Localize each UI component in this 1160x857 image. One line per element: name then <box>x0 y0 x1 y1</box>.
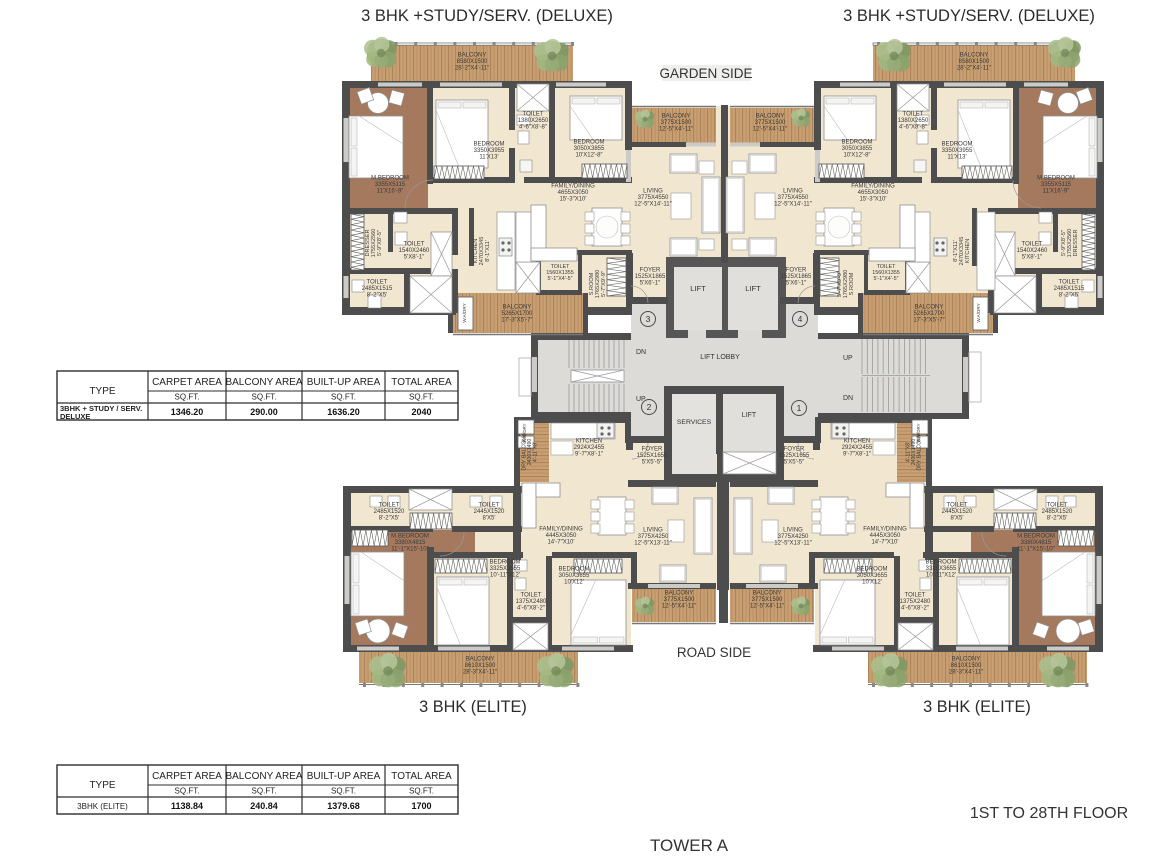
svg-text:1636.20: 1636.20 <box>327 407 360 417</box>
svg-text:BALCONY8610X150028'-3″X4'-11″: BALCONY8610X150028'-3″X4'-11″ <box>949 656 984 675</box>
svg-text:2040: 2040 <box>411 407 431 417</box>
svg-text:3 BHK (ELITE): 3 BHK (ELITE) <box>923 698 1031 716</box>
svg-text:BALCONY8580X150028'-2″X4'-11″: BALCONY8580X150028'-2″X4'-11″ <box>455 52 490 71</box>
svg-text:GARDEN SIDE: GARDEN SIDE <box>659 66 752 81</box>
svg-text:M.BEDROOM3380X481511'-1″X15'-1: M.BEDROOM3380X481511'-1″X15'-10″ <box>1017 533 1055 552</box>
svg-text:SQ.FT.: SQ.FT. <box>331 787 356 796</box>
svg-text:1138.84: 1138.84 <box>171 801 203 811</box>
svg-text:KITCHEN2924X24559'-7″X8'-1″: KITCHEN2924X24559'-7″X8'-1″ <box>574 438 605 457</box>
svg-text:CARPET AREA: CARPET AREA <box>152 377 222 388</box>
svg-text:BALCONY3775X150012'-5″X4'-11″: BALCONY3775X150012'-5″X4'-11″ <box>662 590 697 609</box>
svg-text:BALCONY AREA: BALCONY AREA <box>225 377 302 388</box>
svg-text:DRESSER1755X25605'-9″X8'-5″: DRESSER1755X25605'-9″X8'-5″ <box>365 229 383 258</box>
svg-text:1379.68: 1379.68 <box>327 801 360 811</box>
svg-text:BUILT-UP AREA: BUILT-UP AREA <box>307 377 381 388</box>
svg-text:1700: 1700 <box>411 801 431 811</box>
svg-text:W.M/DRY: W.M/DRY <box>522 423 527 442</box>
svg-text:3 BHK (ELITE): 3 BHK (ELITE) <box>419 698 527 716</box>
svg-text:LIFT: LIFT <box>742 412 757 419</box>
svg-text:TOTAL AREA: TOTAL AREA <box>391 771 452 782</box>
svg-text:BEDROOM3050X385510'X12'-8″: BEDROOM3050X385510'X12'-8″ <box>573 139 605 158</box>
svg-text:3: 3 <box>646 314 651 324</box>
svg-text:BALCONY AREA: BALCONY AREA <box>225 771 302 782</box>
svg-text:BALCONY3775X150012'-5″X4'-11″: BALCONY3775X150012'-5″X4'-11″ <box>750 590 785 609</box>
svg-text:1346.20: 1346.20 <box>171 407 204 417</box>
svg-text:1ST TO 28TH FLOOR: 1ST TO 28TH FLOOR <box>970 805 1128 822</box>
svg-text:DN: DN <box>636 349 646 356</box>
svg-text:BUILT-UP AREA: BUILT-UP AREA <box>307 771 381 782</box>
svg-text:SERVICES: SERVICES <box>677 419 712 426</box>
svg-text:W.M/DRY: W.M/DRY <box>916 423 921 442</box>
svg-text:BALCONY5265X170017'-3″X5'-7″: BALCONY5265X170017'-3″X5'-7″ <box>913 304 945 323</box>
svg-text:SQ.FT.: SQ.FT. <box>175 787 200 796</box>
svg-text:SQ.FT.: SQ.FT. <box>409 393 434 402</box>
svg-text:SQ.FT.: SQ.FT. <box>331 393 356 402</box>
svg-text:DN: DN <box>843 395 853 402</box>
svg-text:ROAD SIDE: ROAD SIDE <box>677 645 751 660</box>
svg-text:DELUXE: DELUXE <box>60 412 90 421</box>
svg-text:SQ.FT.: SQ.FT. <box>252 393 277 402</box>
svg-text:3 BHK +STUDY/SERV. (DELUXE): 3 BHK +STUDY/SERV. (DELUXE) <box>361 7 613 25</box>
svg-text:M.BEDROOM3355X511511'X16'-9″: M.BEDROOM3355X511511'X16'-9″ <box>1037 175 1075 194</box>
svg-text:BALCONY8580X150028'-2″X4'-11″: BALCONY8580X150028'-2″X4'-11″ <box>957 52 992 71</box>
svg-text:TYPE: TYPE <box>89 386 115 397</box>
svg-text:BEDROOM3325X365510'-11″X12': BEDROOM3325X365510'-11″X12' <box>489 559 521 578</box>
svg-text:BEDROOM3050X385510'X12'-8″: BEDROOM3050X385510'X12'-8″ <box>841 139 873 158</box>
svg-text:BALCONY8610X150028'-3″X4'-11″: BALCONY8610X150028'-3″X4'-11″ <box>463 656 498 675</box>
svg-text:8'-1″X11'2470X3345KITCHEN: 8'-1″X11'2470X3345KITCHEN <box>953 237 971 266</box>
svg-text:KITCHEN2470X33458'-1″X11': KITCHEN2470X33458'-1″X11' <box>473 237 491 266</box>
svg-text:UP: UP <box>636 396 646 403</box>
svg-text:BEDROOM3325X365510'-11″X12': BEDROOM3325X365510'-11″X12' <box>925 559 957 578</box>
svg-text:3 BHK +STUDY/SERV. (DELUXE): 3 BHK +STUDY/SERV. (DELUXE) <box>843 7 1095 25</box>
svg-text:SQ.FT.: SQ.FT. <box>409 787 434 796</box>
svg-text:240.84: 240.84 <box>250 801 278 811</box>
svg-text:2: 2 <box>647 402 652 412</box>
svg-text:TOWER A: TOWER A <box>650 836 729 855</box>
svg-text:BALCONY3775X150012'-5″X4'-11″: BALCONY3775X150012'-5″X4'-11″ <box>753 113 788 132</box>
svg-text:S.ROOM1765X29805'-7″X9'-9″: S.ROOM1765X29805'-7″X9'-9″ <box>589 270 607 299</box>
svg-text:UP: UP <box>843 355 853 362</box>
svg-text:SQ.FT.: SQ.FT. <box>175 393 200 402</box>
svg-text:1: 1 <box>797 403 802 413</box>
svg-text:LIFT: LIFT <box>745 284 761 293</box>
svg-text:TOTAL AREA: TOTAL AREA <box>391 377 452 388</box>
svg-text:290.00: 290.00 <box>250 407 278 417</box>
svg-text:W.A/DRY: W.A/DRY <box>462 303 467 322</box>
svg-text:KITCHEN2924X24559'-7″X8'-1″: KITCHEN2924X24559'-7″X8'-1″ <box>842 438 873 457</box>
svg-text:5'-9″X8'-5″1755X2560DRESSER: 5'-9″X8'-5″1755X2560DRESSER <box>1061 229 1079 258</box>
svg-text:3BHK (ELITE): 3BHK (ELITE) <box>77 802 128 811</box>
svg-text:5'-7″X9'-9″1765X2980S.ROOM: 5'-7″X9'-9″1765X2980S.ROOM <box>837 270 855 299</box>
svg-text:LIFT: LIFT <box>690 284 706 293</box>
svg-text:SQ.FT.: SQ.FT. <box>252 787 277 796</box>
svg-text:BALCONY5265X170017'-3″X5'-7″: BALCONY5265X170017'-3″X5'-7″ <box>501 304 533 323</box>
svg-text:TYPE: TYPE <box>89 780 115 791</box>
svg-text:4: 4 <box>798 314 803 324</box>
svg-text:LIFT LOBBY: LIFT LOBBY <box>700 354 740 361</box>
svg-text:CARPET AREA: CARPET AREA <box>152 771 222 782</box>
svg-text:W.A/DRY: W.A/DRY <box>976 303 981 322</box>
svg-text:M.BEDROOM3355X511511'X16'-9″: M.BEDROOM3355X511511'X16'-9″ <box>371 175 409 194</box>
svg-text:M.BEDROOM3380X481511'-1″X15'-1: M.BEDROOM3380X481511'-1″X15'-10″ <box>391 533 429 552</box>
svg-text:BALCONY3775X150012'-5″X4'-11″: BALCONY3775X150012'-5″X4'-11″ <box>659 113 694 132</box>
